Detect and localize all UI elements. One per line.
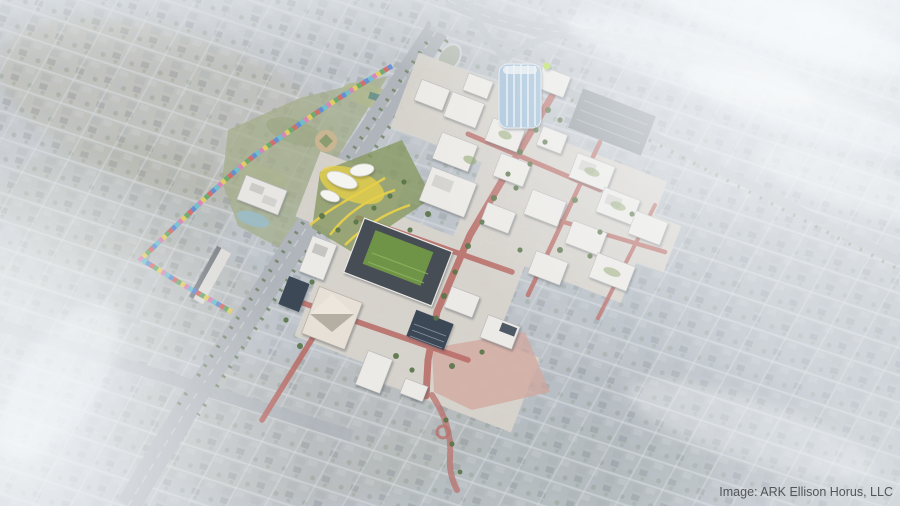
image-credit-caption: Image: ARK Ellison Horus, LLC xyxy=(719,485,893,499)
aerial-rendering-image: Image: ARK Ellison Horus, LLC xyxy=(0,0,900,506)
fog-overlays xyxy=(0,0,900,506)
rendering-canvas: Image: ARK Ellison Horus, LLC xyxy=(0,0,900,506)
